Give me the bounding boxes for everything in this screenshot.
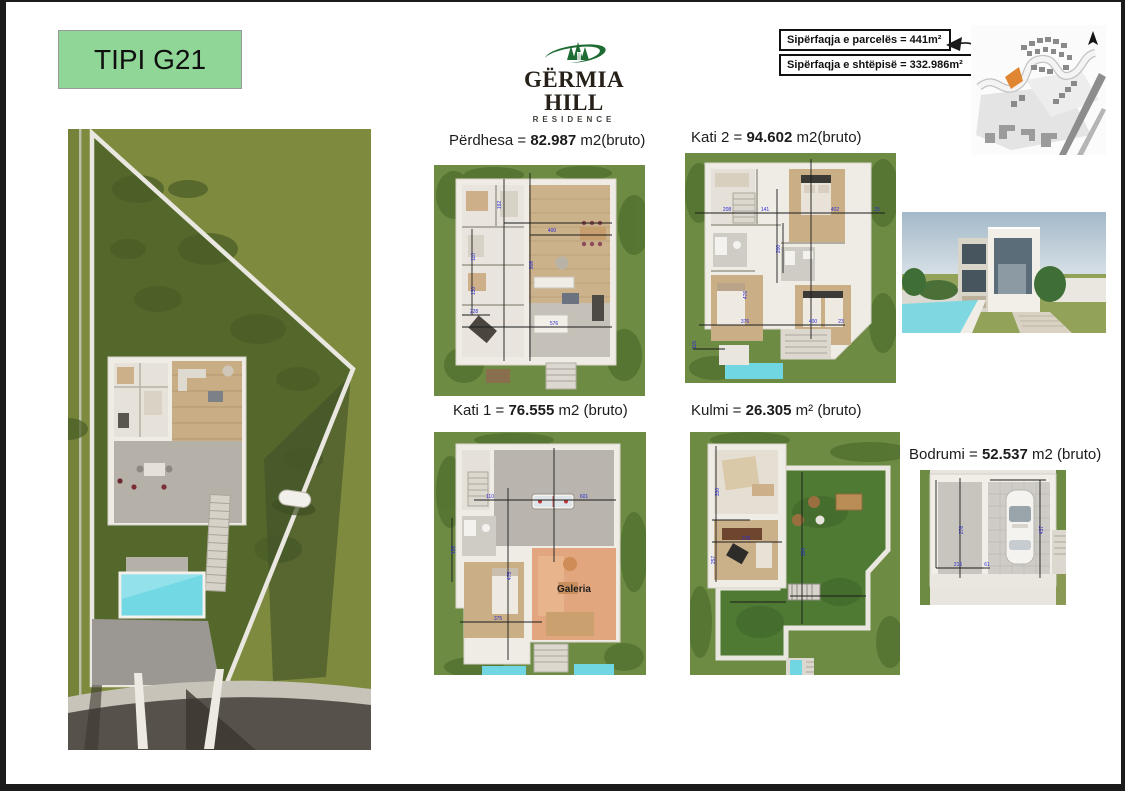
svg-text:110: 110 <box>486 494 494 500</box>
svg-text:257: 257 <box>711 556 717 565</box>
svg-text:208: 208 <box>723 207 732 213</box>
svg-text:475: 475 <box>507 572 513 581</box>
svg-text:278: 278 <box>742 536 751 542</box>
svg-text:228: 228 <box>470 309 479 315</box>
brand-subtitle: RESIDENCE <box>494 115 654 124</box>
perdhesa-label: Përdhesa = 82.987 m2(bruto) <box>449 132 645 149</box>
bodrumi-floorplan: 276 216 61 437 <box>920 470 1066 605</box>
location-map <box>971 25 1106 155</box>
plan-sheet: TIPI G21 GËRMIA HILL RESIDENCE Sipërfaqj… <box>6 2 1121 784</box>
svg-text:601: 601 <box>580 494 589 500</box>
kati1-label: Kati 1 = 76.555 m2 (bruto) <box>453 402 628 419</box>
parcel-area-box: Sipërfaqja e parcelës = 441m² <box>779 29 951 51</box>
kulmi-label: Kulmi = 26.305 m² (bruto) <box>691 402 862 419</box>
galeria-overlay: Galeria <box>532 548 616 640</box>
svg-text:908: 908 <box>529 261 535 270</box>
galeria-label: Galeria <box>557 584 591 595</box>
brand-name: GËRMIA HILL <box>494 68 654 114</box>
svg-text:476: 476 <box>743 291 749 300</box>
kati1-floorplan: Galeria 475 375 110 601 188 <box>434 432 646 675</box>
svg-text:375: 375 <box>494 616 503 622</box>
svg-text:576: 576 <box>550 321 559 327</box>
bodrumi-label: Bodrumi = 52.537 m2 (bruto) <box>909 446 1101 463</box>
pool <box>120 573 204 617</box>
car <box>1006 490 1034 564</box>
perdhesa-floorplan: 400 908 576 228 110 130 192 <box>434 165 645 396</box>
svg-text:304: 304 <box>801 548 807 557</box>
house-3d-render <box>902 212 1106 333</box>
type-title-box: TIPI G21 <box>58 30 242 89</box>
svg-text:376: 376 <box>741 319 750 325</box>
svg-text:61: 61 <box>984 562 990 568</box>
page-frame: TIPI G21 GËRMIA HILL RESIDENCE Sipërfaqj… <box>0 0 1125 791</box>
svg-text:141: 141 <box>761 207 770 213</box>
svg-text:216: 216 <box>954 562 963 568</box>
svg-text:25: 25 <box>874 207 880 213</box>
render-house <box>958 228 1040 312</box>
svg-text:330: 330 <box>715 488 721 497</box>
svg-text:276: 276 <box>959 526 965 535</box>
brand-logo: GËRMIA HILL RESIDENCE <box>494 38 654 124</box>
game-table <box>532 494 574 509</box>
site-plan-aerial <box>68 129 371 750</box>
svg-text:23: 23 <box>838 319 844 325</box>
kulmi-floorplan: 330 257 278 304 <box>690 432 900 675</box>
svg-text:188: 188 <box>451 546 457 555</box>
svg-text:115: 115 <box>692 341 698 349</box>
svg-text:110: 110 <box>471 253 477 261</box>
svg-text:402: 402 <box>831 207 840 213</box>
svg-text:437: 437 <box>1039 526 1045 535</box>
svg-text:400: 400 <box>809 319 818 325</box>
pine-trees-swoosh-icon <box>535 38 613 68</box>
kati2-floorplan: 208 141 402 25 200 476 376 400 23 115 <box>685 153 896 383</box>
driveway <box>92 619 220 685</box>
svg-text:400: 400 <box>548 228 557 234</box>
kati2-label: Kati 2 = 94.602 m2(bruto) <box>691 129 862 146</box>
svg-text:130: 130 <box>471 287 477 296</box>
pool-below <box>725 363 783 379</box>
type-title: TIPI G21 <box>94 44 206 76</box>
svg-text:200: 200 <box>776 245 782 254</box>
svg-text:192: 192 <box>497 201 503 210</box>
